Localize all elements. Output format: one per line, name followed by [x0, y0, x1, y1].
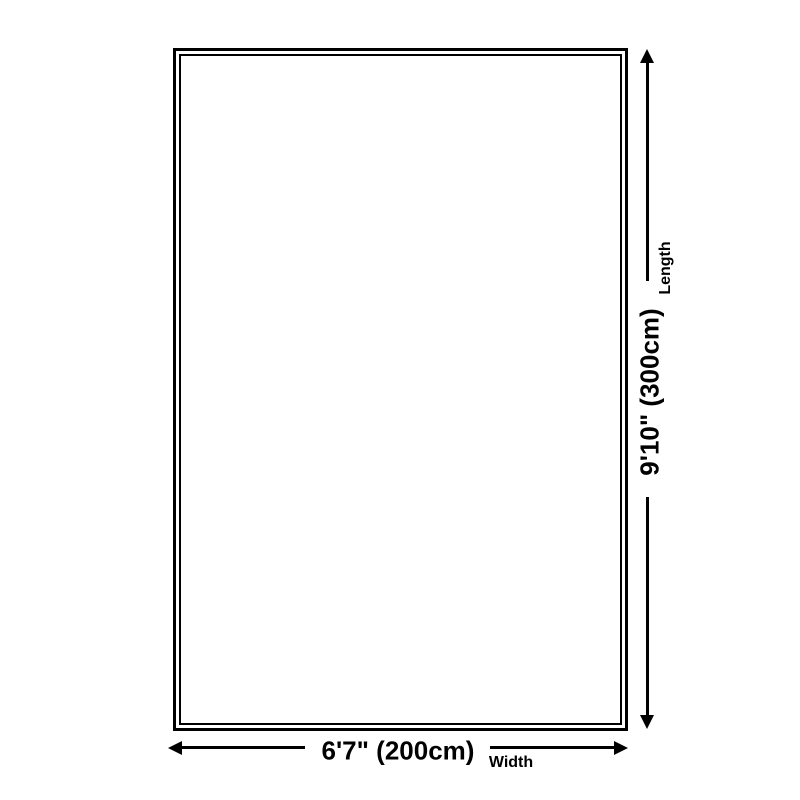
rug-outer-border [173, 48, 628, 731]
dimension-diagram: 6'7" (200cm) Width Length 9'10" (300cm) [0, 0, 800, 800]
arrow-down-icon [640, 715, 654, 729]
arrow-right-icon [614, 741, 628, 755]
length-dimension-line-bottom [646, 497, 649, 715]
width-dimension-line-left [181, 746, 305, 749]
length-value: 9'10" (300cm) [635, 308, 666, 475]
width-label: Width [489, 754, 533, 772]
arrow-left-icon [168, 741, 182, 755]
width-value: 6'7" (200cm) [322, 736, 475, 767]
arrow-up-icon [640, 49, 654, 63]
width-dimension-line-right [490, 746, 614, 749]
length-dimension-line-top [646, 62, 649, 281]
rug-inner-border [179, 54, 622, 725]
length-label: Length [657, 241, 675, 294]
